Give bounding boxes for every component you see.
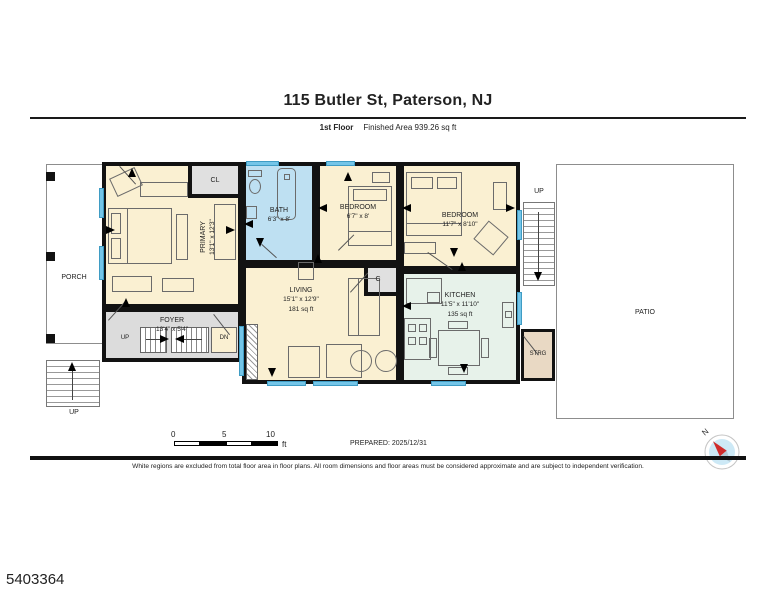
dresser [404, 242, 436, 254]
foyer-up-label: UP [112, 335, 138, 343]
sofa [348, 278, 380, 336]
chair [481, 338, 489, 358]
nightstand [372, 172, 390, 183]
scale-segment [252, 441, 278, 446]
patio-label: PATIO [600, 308, 690, 317]
page-title: 115 Butler St, Paterson, NJ [0, 92, 776, 110]
scale-tick-5: 5 [222, 430, 226, 439]
window [246, 161, 279, 166]
porch-stairs-up-arrow-icon [68, 362, 76, 371]
porch-post [46, 334, 55, 343]
rear-stairs-down-arrow-icon [534, 272, 542, 281]
scale-unit-label: ft [282, 440, 286, 449]
stove [404, 318, 431, 360]
footer-divider [30, 456, 746, 460]
window [99, 188, 104, 218]
window [517, 210, 522, 240]
door-arrow-icon [268, 368, 276, 377]
primary-bench [176, 214, 188, 260]
porch-post [46, 172, 55, 181]
door-arrow-icon [458, 262, 466, 271]
bedroom-mid-label: BEDROOM 6'7" x 8' [316, 203, 400, 222]
porch-post [46, 252, 55, 261]
foyer-up-arrow-icon [160, 335, 169, 343]
burner [408, 337, 416, 345]
floor-subtitle: 1st FloorFinished Area 939.26 sq ft [0, 123, 776, 132]
storage-label: STRG [521, 351, 555, 359]
scale-segment [226, 441, 252, 446]
round-table [375, 350, 397, 372]
window [326, 161, 355, 166]
window [517, 292, 522, 325]
disclaimer-text: White regions are excluded from total fl… [0, 463, 776, 470]
side-table [298, 262, 314, 280]
kitchen-label: KITCHEN 11'5" x 11'10" 135 sq ft [414, 291, 506, 319]
prepared-date: PREPARED: 2025/12/31 [350, 440, 427, 447]
pillow [353, 189, 387, 201]
patio-region [556, 164, 734, 419]
scale-segment [174, 441, 200, 446]
floor-label: 1st Floor [320, 123, 354, 132]
window [267, 381, 306, 386]
radiator [246, 324, 258, 380]
rear-stairs-up-label: UP [521, 187, 557, 196]
door-arrow-icon [506, 204, 515, 212]
door-arrow-icon [256, 238, 264, 247]
living-label: LIVING 15'1" x 12'9" 181 sq ft [256, 286, 346, 314]
sofa-line [358, 279, 359, 335]
window [239, 326, 244, 376]
primary-cabinet [162, 278, 194, 292]
chair [448, 321, 468, 329]
door-arrow-icon [128, 168, 136, 177]
porch-label: PORCH [46, 273, 102, 282]
bed-line [127, 209, 128, 263]
porch-stairs-arrow-line [72, 369, 73, 400]
burner [408, 324, 416, 332]
door-arrow-icon [450, 248, 458, 257]
door-arrow-icon [402, 302, 411, 310]
window [431, 381, 466, 386]
listing-id: 5403364 [6, 571, 64, 588]
foyer-dn-label: DN [209, 335, 239, 343]
burner [419, 337, 427, 345]
toilet-tank [248, 170, 262, 177]
finished-area-label: Finished Area 939.26 sq ft [363, 123, 456, 132]
scale-tick-0: 0 [171, 430, 175, 439]
closet-c-label: C [364, 275, 392, 284]
closet-cl-label: CL [192, 176, 238, 185]
pillow [111, 238, 121, 259]
door-arrow-icon [402, 204, 411, 212]
door-arrow-icon [122, 298, 130, 307]
compass-north-label: N [700, 427, 710, 438]
primary-label: PRIMARY 13'1" x 12'3" [199, 187, 215, 287]
armchair [288, 346, 320, 378]
chair [429, 338, 437, 358]
title-divider [30, 117, 746, 119]
scale-tick-10: 10 [266, 430, 275, 439]
desk [493, 182, 507, 210]
door-arrow-icon [344, 172, 352, 181]
toilet-bowl [249, 179, 261, 194]
round-table [350, 350, 372, 372]
burner [419, 324, 427, 332]
primary-cabinet [112, 276, 152, 292]
foyer-dn-arrow-line [182, 339, 202, 340]
bath-label: BATH 6'3" x 8' [246, 206, 312, 225]
foyer-label: FOYER 13'4" x 5'4" [132, 316, 212, 335]
bedroom-right-label: BEDROOM 11'7" x 8'10" [414, 211, 506, 230]
door-arrow-icon [106, 226, 115, 234]
sink-basin [505, 311, 512, 318]
kitchen-table [438, 330, 480, 366]
primary-dresser [140, 182, 188, 197]
tub-drain [284, 174, 290, 180]
bed-line [349, 231, 391, 232]
primary-bed [108, 208, 172, 264]
door-arrow-icon [226, 226, 235, 234]
rear-stairs-arrow-line [538, 212, 539, 274]
pillow [411, 177, 433, 189]
scale-segment [200, 441, 226, 446]
door-arrow-icon [314, 254, 322, 263]
porch-stairs-up-label: UP [52, 408, 96, 417]
pillow [437, 177, 457, 189]
door-arrow-icon [460, 364, 468, 373]
window [313, 381, 358, 386]
foyer-dn-arrow-icon [175, 335, 184, 343]
